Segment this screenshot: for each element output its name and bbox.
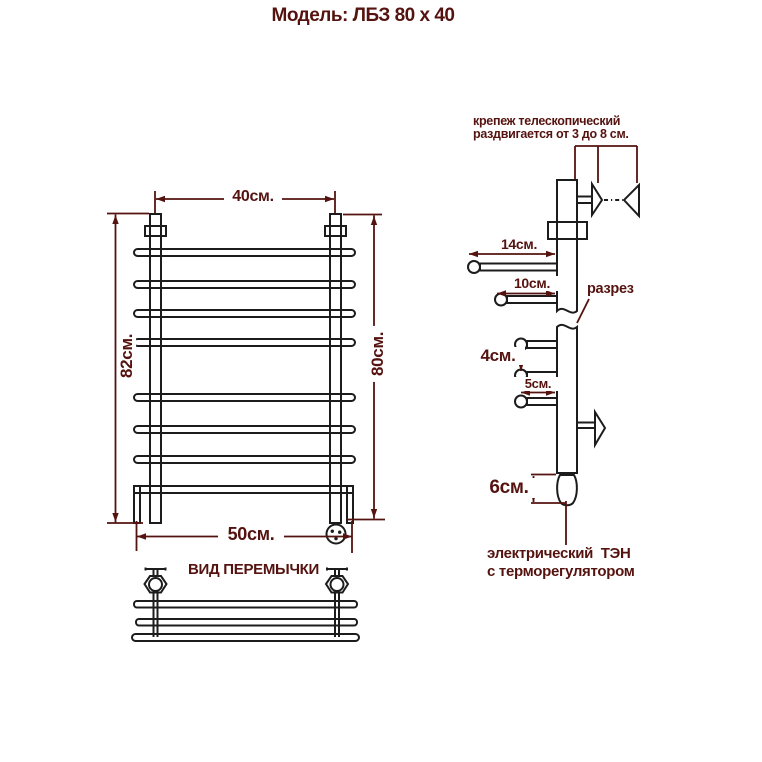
wall-bracket-icon: [326, 568, 348, 638]
dim-bottom-width-label: 50см.: [218, 525, 284, 544]
dim-rail-10-label: 10см.: [506, 276, 558, 291]
front-right-post: [330, 214, 341, 523]
section-label: разрез: [587, 282, 634, 297]
technical-drawing-page: Модель: ЛБЗ 80 х 40 40см. 82см. 80см. 50…: [0, 0, 762, 762]
lower-mount-icon: [577, 412, 605, 445]
front-left-post: [150, 214, 161, 523]
heater-element-icon: [557, 475, 577, 505]
dim-rail-5-label: 5см.: [514, 377, 562, 391]
heater-note-line2: с терморегулятором: [487, 563, 635, 581]
crossbar-view-drawing: [132, 568, 359, 642]
telescopic-mount-note: крепеж телескопический раздвигается от 3…: [473, 115, 629, 141]
front-view-drawing: [134, 214, 355, 544]
heater-note-line1: электрический ТЭН: [487, 545, 635, 563]
dim-heater-6-label: 6см.: [481, 478, 537, 498]
page-title: Модель: ЛБЗ 80 х 40: [255, 6, 471, 26]
telescopic-mount-icon: [577, 184, 639, 216]
heater-note: электрический ТЭН с терморегулятором: [487, 545, 635, 580]
dim-gap-4-label: 4см.: [471, 347, 525, 365]
dim-top-width-label: 40см.: [224, 189, 282, 206]
dim-rail-14-label: 14см.: [493, 237, 545, 252]
crossbar-view-title: ВИД ПЕРЕМЫЧКИ: [188, 562, 318, 578]
dim-right-height-label: 80см.: [369, 326, 387, 382]
side-view-drawing: [468, 180, 639, 505]
right-collar: [325, 226, 346, 236]
left-collar: [145, 226, 166, 236]
telescopic-mount-note-line2: раздвигается от 3 до 8 см.: [473, 128, 629, 141]
wall-bracket-icon: [145, 568, 167, 638]
front-view-dimensions: [107, 191, 385, 553]
dim-left-height-label: 82см.: [118, 328, 136, 384]
socket-icon: [327, 525, 346, 544]
